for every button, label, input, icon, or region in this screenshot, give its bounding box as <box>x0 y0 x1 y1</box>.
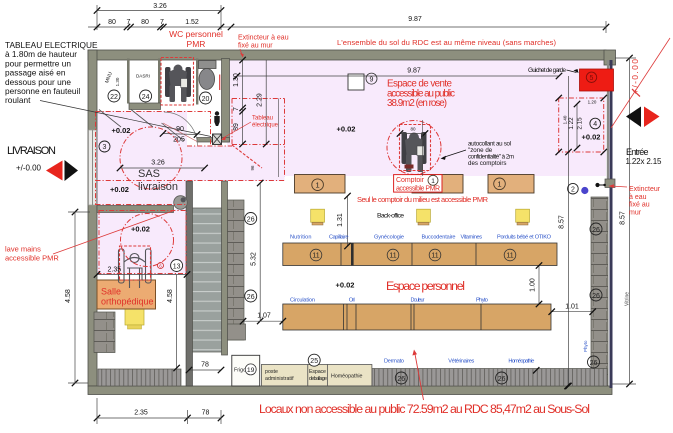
svg-text:78: 78 <box>202 410 210 417</box>
svg-text:+/-0.00: +/-0.00 <box>16 164 42 173</box>
svg-text:fixé au mur: fixé au mur <box>238 43 273 50</box>
svg-text:poste: poste <box>265 369 278 375</box>
svg-text:Phyto: Phyto <box>583 340 588 352</box>
svg-text:9: 9 <box>370 76 374 83</box>
svg-text:80: 80 <box>141 19 149 26</box>
svg-text:2.29: 2.29 <box>257 93 264 107</box>
svg-text:11: 11 <box>431 253 438 260</box>
svg-text:PMR: PMR <box>187 39 206 49</box>
svg-text:4.58: 4.58 <box>167 289 174 303</box>
svg-text:Espace: Espace <box>309 369 326 375</box>
svg-text:89: 89 <box>233 123 240 131</box>
svg-text:26: 26 <box>247 216 255 223</box>
svg-text:Locaux non accessible au publi: Locaux non accessible au public 72.59m2 … <box>259 402 590 416</box>
svg-text:Buccodentaire: Buccodentaire <box>422 235 456 241</box>
svg-text:26: 26 <box>397 376 405 383</box>
svg-text:Orl: Orl <box>349 298 355 304</box>
svg-text:2.15: 2.15 <box>577 117 584 130</box>
svg-text:78: 78 <box>201 362 209 369</box>
svg-text:1.20: 1.20 <box>588 100 597 105</box>
svg-text:Comptoir: Comptoir <box>396 177 425 184</box>
svg-text:des comptoirs: des comptoirs <box>468 160 507 167</box>
svg-text:3: 3 <box>103 144 107 151</box>
svg-text:+0.02: +0.02 <box>131 225 150 234</box>
svg-text:Nutrition: Nutrition <box>290 235 312 241</box>
svg-text:26: 26 <box>498 376 506 383</box>
svg-text:Phyto: Phyto <box>476 298 488 304</box>
svg-text:8.57: 8.57 <box>620 211 627 225</box>
svg-text:Porduits bébé et OTIKO: Porduits bébé et OTIKO <box>497 235 552 241</box>
svg-text:13: 13 <box>173 263 181 270</box>
svg-text:4.58: 4.58 <box>65 289 72 303</box>
svg-text:4: 4 <box>593 121 597 128</box>
svg-text:26: 26 <box>592 293 600 300</box>
svg-text:11: 11 <box>312 253 319 260</box>
svg-text:1.31: 1.31 <box>337 213 344 227</box>
svg-text:2.35: 2.35 <box>134 410 148 417</box>
svg-text:26: 26 <box>592 227 600 234</box>
svg-text:1.22: 1.22 <box>568 117 575 130</box>
svg-text:Salle: Salle <box>101 287 121 297</box>
svg-text:1.30: 1.30 <box>115 77 120 86</box>
svg-text:accessible PMR: accessible PMR <box>396 186 440 193</box>
svg-text:7: 7 <box>233 107 240 111</box>
svg-text:Espace personnel: Espace personnel <box>386 279 465 293</box>
svg-text:205: 205 <box>173 137 185 144</box>
svg-text:+0.02: +0.02 <box>336 281 355 290</box>
svg-text:26: 26 <box>247 294 255 301</box>
svg-text:administratif: administratif <box>265 376 294 382</box>
svg-text:1: 1 <box>497 180 501 189</box>
svg-text:5.32: 5.32 <box>251 252 258 266</box>
svg-text:25: 25 <box>310 358 318 365</box>
svg-text:2.35: 2.35 <box>108 267 122 274</box>
svg-text:1: 1 <box>431 178 435 185</box>
svg-text:9.87: 9.87 <box>408 16 422 23</box>
svg-text:11: 11 <box>506 253 513 260</box>
svg-text:mur: mur <box>629 209 642 216</box>
svg-text:3.26: 3.26 <box>151 160 165 167</box>
svg-text:7: 7 <box>160 19 164 26</box>
svg-text:Vitrine: Vitrine <box>625 292 631 306</box>
svg-text:3.26: 3.26 <box>153 3 167 10</box>
svg-text:+0.02: +0.02 <box>110 185 129 194</box>
svg-text:Guichet de garde: Guichet de garde <box>528 67 566 74</box>
svg-text:Circulation: Circulation <box>290 298 315 304</box>
svg-text:1.00: 1.00 <box>530 278 537 292</box>
svg-text:2: 2 <box>571 186 575 193</box>
svg-text:1.07: 1.07 <box>257 313 271 320</box>
svg-text:8.57: 8.57 <box>559 215 566 229</box>
svg-text:20: 20 <box>202 96 210 103</box>
svg-text:1.01: 1.01 <box>565 304 579 311</box>
svg-text:96: 96 <box>250 165 255 171</box>
svg-text:+0.02: +0.02 <box>582 133 601 142</box>
svg-text:80: 80 <box>108 19 116 26</box>
svg-text:Tableau: Tableau <box>252 116 273 122</box>
svg-text:80: 80 <box>410 127 416 132</box>
svg-text:fixé au: fixé au <box>629 202 650 209</box>
svg-text:électrique: électrique <box>252 123 279 129</box>
svg-text:26: 26 <box>590 360 598 367</box>
svg-text:LIVRAISON: LIVRAISON <box>7 145 56 157</box>
svg-text:Back-office: Back-office <box>377 213 404 220</box>
svg-text:Homéopathie: Homéopathie <box>331 374 363 380</box>
svg-text:Dermato: Dermato <box>384 359 404 365</box>
svg-text:Extincteur à eau: Extincteur à eau <box>238 35 289 42</box>
svg-text:Extincteur: Extincteur <box>629 186 661 193</box>
svg-text:Entrée: Entrée <box>626 147 649 157</box>
svg-text:deballage: deballage <box>309 376 327 382</box>
svg-text:Seul le comptoir du milieu est: Seul le comptoir du milieu est accessibl… <box>357 195 489 204</box>
svg-text:Gynécologie: Gynécologie <box>374 235 404 241</box>
svg-text:22: 22 <box>110 94 118 101</box>
svg-text:livraison: livraison <box>138 181 178 193</box>
svg-text:orthopédique: orthopédique <box>101 297 154 307</box>
svg-text:5: 5 <box>590 75 594 82</box>
svg-text:Vitamines: Vitamines <box>461 235 483 241</box>
svg-text:lave mains: lave mains <box>5 245 41 254</box>
svg-text:L'ensemble du sol du RDC est a: L'ensemble du sol du RDC est au même niv… <box>337 38 556 47</box>
svg-text:1.40: 1.40 <box>563 115 568 124</box>
svg-text:1.52: 1.52 <box>185 19 199 26</box>
svg-text:Homéopathie: Homéopathie <box>508 359 534 365</box>
svg-text:+0.02: +0.02 <box>337 125 356 134</box>
svg-text:SAS: SAS <box>138 168 160 180</box>
svg-text:Capillaire: Capillaire <box>329 235 349 241</box>
svg-text:DASRI: DASRI <box>136 74 150 79</box>
svg-text:24: 24 <box>142 94 150 101</box>
svg-text:à eau: à eau <box>629 194 647 201</box>
svg-text:9.87: 9.87 <box>407 68 421 75</box>
svg-text:+0.02: +0.02 <box>112 126 131 135</box>
svg-text:roulant: roulant <box>5 95 31 105</box>
svg-text:19: 19 <box>247 367 255 374</box>
svg-text:38.9m2 (en rose): 38.9m2 (en rose) <box>387 98 447 109</box>
svg-text:1.22x 2.15: 1.22x 2.15 <box>626 157 663 166</box>
svg-text:WC personnel: WC personnel <box>169 29 223 39</box>
svg-text:Vétérinaires: Vétérinaires <box>448 359 474 365</box>
svg-text:Douleur: Douleur <box>411 298 425 304</box>
svg-text:accessible PMR: accessible PMR <box>5 254 59 263</box>
svg-text:Frigo: Frigo <box>234 368 246 374</box>
svg-text:1.30: 1.30 <box>233 73 240 87</box>
svg-text:1: 1 <box>316 180 320 189</box>
svg-text:7: 7 <box>127 19 131 26</box>
svg-text:11: 11 <box>389 253 396 260</box>
